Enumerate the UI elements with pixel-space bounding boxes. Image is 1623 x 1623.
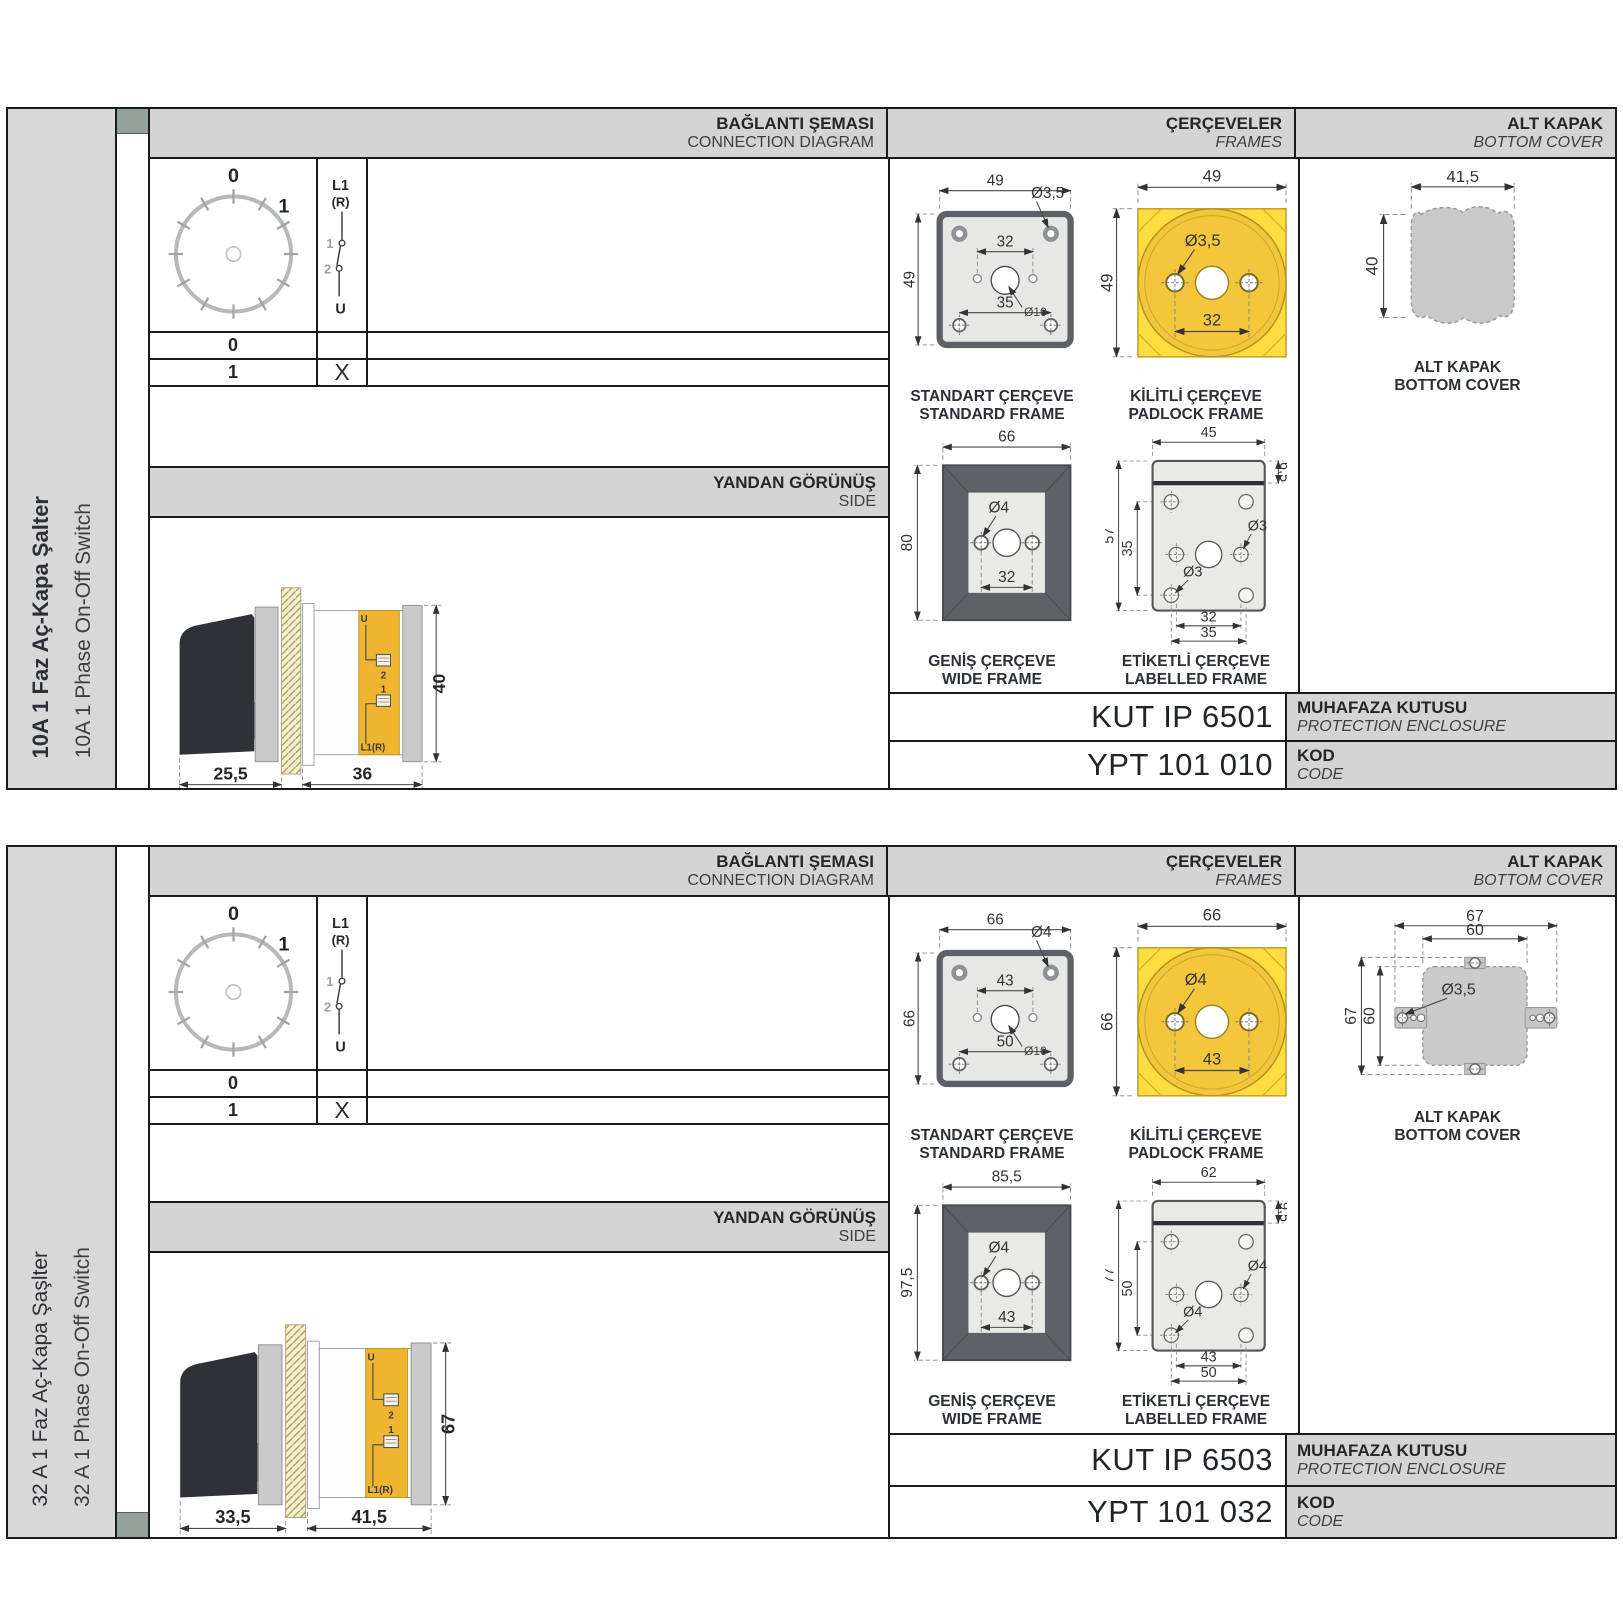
- panel-body: 0 1 L1 (R) 1 2 U: [150, 159, 1615, 788]
- enclosure-code-label: MUHAFAZA KUTUSU PROTECTION ENCLOSURE: [1285, 1435, 1615, 1485]
- contact-1-label: 1: [326, 974, 333, 989]
- dim-hole-left: Ø4: [1183, 1304, 1202, 1320]
- standard-frame-drawing: 66 Ø4 66 43 Ø10 50: [902, 901, 1081, 1127]
- header-bottom-cover: ALT KAPAK BOTTOM COVER: [1296, 847, 1615, 895]
- dim-height: 80: [901, 534, 916, 551]
- panel-content: BAĞLANTI ŞEMASI CONNECTION DIAGRAM ÇERÇE…: [150, 847, 1615, 1537]
- dim-hole: Ø3,5: [1184, 230, 1220, 249]
- contact-diagram-cell: L1 (R) 1 2 U: [318, 159, 368, 331]
- dim-height: 66: [902, 1010, 919, 1027]
- header-bottom-cover-en: BOTTOM COVER: [1474, 872, 1604, 890]
- enclosure-label-tr: MUHAFAZA KUTUSU: [1297, 1441, 1615, 1461]
- header-bottom-cover: ALT KAPAK BOTTOM COVER: [1296, 109, 1615, 157]
- labelled-frame-caption: ETİKETLİ ÇERÇEVE LABELLED FRAME: [1122, 1393, 1270, 1430]
- bottom-cover-column: 41,5 40 ALT KAPAK BOTTOM COVER: [1300, 159, 1615, 692]
- frames-column: 66 Ø4 66 43 Ø10 50 STANDART ÇERÇEVE STAN…: [890, 897, 1300, 1433]
- table-row: 1 X: [150, 360, 888, 387]
- side-view-en: SIDE: [839, 493, 876, 511]
- mark-cell: X: [318, 1098, 368, 1123]
- wide-frame-caption: GENİŞ ÇERÇEVE WIDE FRAME: [928, 653, 1055, 690]
- dim-width: 45: [1201, 427, 1217, 441]
- section-headers: BAĞLANTI ŞEMASI CONNECTION DIAGRAM ÇERÇE…: [150, 109, 1615, 159]
- product-title-en: 32 A 1 Phase On-Off Switch: [71, 1247, 95, 1507]
- product-code-row: YPT 101 010 KOD CODE: [890, 740, 1615, 788]
- dim-hole-right: Ø3: [1248, 518, 1267, 534]
- enclosure-label-tr: MUHAFAZA KUTUSU: [1297, 698, 1615, 718]
- caption-en: BOTTOM COVER: [1394, 1127, 1520, 1145]
- code-label-tr: KOD: [1297, 746, 1615, 766]
- header-frames-en: FRAMES: [1215, 134, 1282, 152]
- header-connection-tr: BAĞLANTI ŞEMASI: [716, 114, 874, 134]
- caption-en: BOTTOM COVER: [1394, 377, 1520, 395]
- dial-position-0: 0: [227, 165, 238, 187]
- header-bottom-cover-tr: ALT KAPAK: [1507, 114, 1603, 134]
- table-row: 1 X: [150, 1098, 888, 1125]
- dim-height: 57: [1105, 528, 1117, 544]
- dim-band: 9,5: [1276, 1202, 1287, 1222]
- contact-2-label: 2: [324, 261, 331, 276]
- padlock-frame-drawing: 49 49 Ø3,5 32: [1099, 162, 1294, 388]
- dim-bottom-span: 35: [997, 294, 1014, 311]
- dim-body-height: 67: [439, 1414, 459, 1434]
- side-view-area: U 2 1 L1(R) 25,5 36 40: [150, 518, 888, 788]
- bottom-cover-caption: ALT KAPAK BOTTOM COVER: [1394, 1109, 1520, 1146]
- contact-diagram-drawing: L1 (R) 1 2 U: [319, 899, 365, 1069]
- switching-table: 0 1 X: [150, 331, 888, 387]
- dim-height: 40: [1362, 257, 1381, 276]
- dim-top-span: 43: [997, 972, 1014, 989]
- enclosure-code-label: MUHAFAZA KUTUSU PROTECTION ENCLOSURE: [1285, 694, 1615, 740]
- header-frames-en: FRAMES: [1215, 872, 1282, 890]
- standard-frame-figure: 66 Ø4 66 43 Ø10 50 STANDART ÇERÇEVE STAN…: [902, 901, 1081, 1164]
- caption-en: LABELLED FRAME: [1122, 1411, 1270, 1429]
- dim-inner-height: 35: [1120, 540, 1136, 556]
- side-view-header: YANDAN GÖRÜNÜŞ SIDE: [150, 466, 888, 518]
- code-label-tr: KOD: [1297, 1493, 1615, 1513]
- enclosure-code-row: KUT IP 6503 MUHAFAZA KUTUSU PROTECTION E…: [890, 1433, 1615, 1485]
- dim-corner-hole: Ø4: [1031, 924, 1052, 941]
- switch-dial-drawing: 0 1: [157, 164, 310, 326]
- feed-phase-label: (R): [332, 194, 350, 209]
- header-connection-diagram: BAĞLANTI ŞEMASI CONNECTION DIAGRAM: [150, 847, 888, 895]
- terminal-u: U: [367, 1352, 374, 1363]
- position-cell: 1: [150, 360, 318, 385]
- frames-column: 49 Ø3,5 49 32 Ø10 35 STANDART ÇERÇEVE ST…: [890, 159, 1300, 692]
- labelled-frame-caption: ETİKETLİ ÇERÇEVE LABELLED FRAME: [1122, 653, 1270, 690]
- connection-diagram: 0 1 L1 (R) 1 2 U: [150, 159, 888, 331]
- standard-frame-figure: 49 Ø3,5 49 32 Ø10 35 STANDART ÇERÇEVE ST…: [902, 162, 1081, 425]
- product-code-label: KOD CODE: [1285, 742, 1615, 788]
- frames-region: 66 Ø4 66 43 Ø10 50 STANDART ÇERÇEVE STAN…: [890, 897, 1615, 1537]
- enclosure-code-row: KUT IP 6501 MUHAFAZA KUTUSU PROTECTION E…: [890, 692, 1615, 740]
- dim-width: 66: [987, 911, 1004, 928]
- caption-tr: GENİŞ ÇERÇEVE: [928, 1393, 1055, 1411]
- caption-tr: STANDART ÇERÇEVE: [910, 388, 1073, 406]
- enclosure-code-value: KUT IP 6503: [890, 1435, 1285, 1485]
- code-label-en: CODE: [1297, 766, 1615, 784]
- dim-width: 49: [987, 172, 1004, 189]
- dim-hole-left: Ø3: [1183, 564, 1202, 580]
- frames-and-cover: 49 Ø3,5 49 32 Ø10 35 STANDART ÇERÇEVE ST…: [890, 159, 1615, 692]
- switch-dial-drawing: 0 1: [157, 902, 310, 1064]
- table-row: 0: [150, 1071, 888, 1098]
- dim-span: 32: [1202, 310, 1220, 329]
- wide-frame-figure: 66 80 Ø4 32 GENİŞ ÇERÇEVE WIDE FRAME: [901, 427, 1083, 690]
- section-headers: BAĞLANTI ŞEMASI CONNECTION DIAGRAM ÇERÇE…: [150, 847, 1615, 897]
- panel-body: 0 1 L1 (R) 1 2 U: [150, 897, 1615, 1537]
- header-bottom-cover-tr: ALT KAPAK: [1507, 852, 1603, 872]
- dim-height: 49: [902, 271, 919, 288]
- product-title-tr: 32 A 1 Faz Aç-Kapa Şaşlter: [29, 1251, 53, 1507]
- standard-frame-drawing: 49 Ø3,5 49 32 Ø10 35: [902, 162, 1081, 388]
- side-view-drawing: U 2 1 L1(R) 33,5 41,5 67: [162, 1263, 462, 1537]
- caption-tr: ETİKETLİ ÇERÇEVE: [1122, 653, 1270, 671]
- dim-width: 66: [998, 428, 1015, 445]
- labelled-frame-figure: 62 9,5 77 50 Ø4 Ø4 43 50 ETİKETLİ ÇERÇEV…: [1105, 1167, 1287, 1430]
- wide-frame-drawing: 66 80 Ø4 32: [901, 427, 1083, 653]
- terminal-2: 2: [381, 670, 386, 681]
- padlock-frame-drawing: 66 66 Ø4 43: [1099, 901, 1294, 1127]
- switch-dial-cell: 0 1: [150, 159, 318, 331]
- connection-diagram: 0 1 L1 (R) 1 2 U: [150, 897, 888, 1069]
- caption-en: LABELLED FRAME: [1122, 671, 1270, 689]
- side-view-area: U 2 1 L1(R) 33,5 41,5 67: [150, 1253, 888, 1537]
- dim-corner-hole: Ø3,5: [1031, 185, 1064, 202]
- bottom-cover-figure: 41,5 40 ALT KAPAK BOTTOM COVER: [1344, 171, 1572, 396]
- product-code-label: KOD CODE: [1285, 1487, 1615, 1537]
- product-panel-10a: 10A 1 Faz Aç-Kapa Şalter 10A 1 Phase On-…: [6, 107, 1617, 790]
- product-panel-32a: 32 A 1 Faz Aç-Kapa Şaşlter 32 A 1 Phase …: [6, 845, 1617, 1539]
- dim-inner-height: 50: [1120, 1280, 1136, 1296]
- dim-span: 43: [1202, 1049, 1220, 1068]
- empty-cell: [368, 333, 888, 358]
- caption-tr: ALT KAPAK: [1394, 1109, 1520, 1127]
- connection-column: 0 1 L1 (R) 1 2 U: [150, 159, 890, 788]
- padlock-frame-figure: 66 66 Ø4 43 KİLİTLİ ÇERÇEVE PADLOCK FRAM…: [1099, 901, 1294, 1164]
- mark-cell: X: [318, 360, 368, 385]
- position-cell: 1: [150, 1098, 318, 1123]
- bottom-cover-figure: 67 60 67 60 Ø3,5 ALT KAPAK BOTTOM COVER: [1341, 909, 1574, 1146]
- dim-span: 32: [998, 569, 1015, 586]
- terminal-l1r: L1(R): [361, 742, 386, 753]
- caption-en: WIDE FRAME: [928, 671, 1055, 689]
- dim-inner-height: 60: [1362, 1007, 1379, 1025]
- enclosure-code-value: KUT IP 6501: [890, 694, 1285, 740]
- dim-hole: Ø4: [1184, 969, 1206, 988]
- dim-outer-height: 67: [1343, 1007, 1360, 1025]
- table-row: 0: [150, 333, 888, 360]
- mark-cell: [318, 333, 368, 358]
- header-frames: ÇERÇEVELER FRAMES: [888, 109, 1296, 157]
- header-frames-tr: ÇERÇEVELER: [1166, 852, 1282, 872]
- product-sidebar: 10A 1 Faz Aç-Kapa Şalter 10A 1 Phase On-…: [8, 109, 117, 788]
- header-frames-tr: ÇERÇEVELER: [1166, 114, 1282, 134]
- terminal-1: 1: [388, 1425, 394, 1436]
- padlock-frame-caption: KİLİTLİ ÇERÇEVE PADLOCK FRAME: [1129, 388, 1264, 425]
- labelled-frame-drawing: 62 9,5 77 50 Ø4 Ø4 43 50: [1105, 1167, 1287, 1393]
- side-view-drawing: U 2 1 L1(R) 25,5 36 40: [162, 528, 452, 788]
- position-cell: 0: [150, 333, 318, 358]
- caption-tr: KİLİTLİ ÇERÇEVE: [1129, 388, 1264, 406]
- feed-phase-label: (R): [332, 932, 350, 947]
- side-view-tr: YANDAN GÖRÜNÜŞ: [713, 473, 876, 493]
- dim-center-hole: Ø10: [1024, 1044, 1047, 1058]
- product-code-row: YPT 101 032 KOD CODE: [890, 1485, 1615, 1537]
- product-title-en: 10A 1 Phase On-Off Switch: [72, 503, 96, 758]
- dim-front-depth: 25,5: [213, 763, 247, 783]
- load-label: U: [335, 1040, 345, 1056]
- dim-width: 66: [1202, 905, 1220, 924]
- edge-strip: [117, 847, 150, 1537]
- dim-top-span: 32: [997, 233, 1014, 250]
- enclosure-label-en: PROTECTION ENCLOSURE: [1297, 1461, 1615, 1479]
- switching-table: 0 1 X: [150, 1069, 888, 1125]
- contact-diagram-cell: L1 (R) 1 2 U: [318, 897, 368, 1069]
- position-cell: 0: [150, 1071, 318, 1096]
- padlock-frame-caption: KİLİTLİ ÇERÇEVE PADLOCK FRAME: [1129, 1127, 1264, 1164]
- frames-region: 49 Ø3,5 49 32 Ø10 35 STANDART ÇERÇEVE ST…: [890, 159, 1615, 788]
- dim-front-depth: 33,5: [215, 1507, 250, 1527]
- header-connection-en: CONNECTION DIAGRAM: [687, 872, 874, 890]
- mark-cell: [318, 1071, 368, 1096]
- feed-line-label: L1: [332, 178, 349, 194]
- caption-en: PADLOCK FRAME: [1129, 1145, 1264, 1163]
- dim-span-outer: 50: [1201, 1365, 1217, 1381]
- caption-en: WIDE FRAME: [928, 1411, 1055, 1429]
- connection-column: 0 1 L1 (R) 1 2 U: [150, 897, 890, 1537]
- dim-body-depth: 41,5: [352, 1507, 387, 1527]
- dim-hole: Ø3,5: [1442, 982, 1476, 999]
- empty-cell: [368, 360, 888, 385]
- dim-hole-right: Ø4: [1248, 1258, 1267, 1274]
- header-frames: ÇERÇEVELER FRAMES: [888, 847, 1296, 895]
- bottom-cover-column: 67 60 67 60 Ø3,5 ALT KAPAK BOTTOM COVER: [1300, 897, 1615, 1433]
- dim-inner-width: 60: [1466, 922, 1484, 939]
- side-view-header: YANDAN GÖRÜNÜŞ SIDE: [150, 1201, 888, 1253]
- caption-en: PADLOCK FRAME: [1129, 406, 1264, 424]
- dim-hole: Ø4: [988, 1239, 1009, 1256]
- product-sidebar: 32 A 1 Faz Aç-Kapa Şaşlter 32 A 1 Phase …: [8, 847, 117, 1537]
- terminal-l1r: L1(R): [367, 1485, 393, 1496]
- wide-frame-drawing: 85,5 97,5 Ø4 43: [901, 1167, 1083, 1393]
- header-connection-en: CONNECTION DIAGRAM: [687, 134, 874, 152]
- padlock-frame-figure: 49 49 Ø3,5 32 KİLİTLİ ÇERÇEVE PADLOCK FR…: [1099, 162, 1294, 425]
- edge-mark: [117, 1512, 148, 1537]
- dim-center-hole: Ø10: [1024, 305, 1047, 319]
- caption-tr: ALT KAPAK: [1394, 359, 1520, 377]
- dial-position-1: 1: [278, 196, 289, 218]
- terminal-2: 2: [388, 1410, 394, 1421]
- frames-and-cover: 66 Ø4 66 43 Ø10 50 STANDART ÇERÇEVE STAN…: [890, 897, 1615, 1433]
- labelled-frame-figure: 45 6,5 57 35 Ø3 Ø3 32 35 ETİKETLİ ÇERÇEV…: [1105, 427, 1287, 690]
- load-label: U: [335, 302, 345, 318]
- empty-cell: [368, 1071, 888, 1096]
- terminal-1: 1: [381, 684, 387, 695]
- header-bottom-cover-en: BOTTOM COVER: [1474, 134, 1604, 152]
- dim-width: 49: [1202, 166, 1220, 185]
- edge-mark: [117, 109, 148, 134]
- dim-height: 66: [1099, 1012, 1117, 1030]
- enclosure-label-en: PROTECTION ENCLOSURE: [1297, 718, 1615, 736]
- dim-width: 62: [1201, 1167, 1217, 1181]
- dim-span-inner: 32: [1201, 609, 1217, 625]
- wide-frame-figure: 85,5 97,5 Ø4 43 GENİŞ ÇERÇEVE WIDE FRAME: [901, 1167, 1083, 1430]
- side-view-en: SIDE: [839, 1228, 876, 1246]
- dim-body-depth: 36: [353, 763, 373, 783]
- dial-position-1: 1: [278, 934, 289, 956]
- product-title-tr: 10A 1 Faz Aç-Kapa Şalter: [28, 496, 54, 758]
- dim-hole: Ø4: [988, 499, 1009, 516]
- spacer: [150, 387, 888, 466]
- terminal-u: U: [361, 614, 368, 625]
- dim-height: 77: [1105, 1268, 1117, 1284]
- caption-tr: STANDART ÇERÇEVE: [910, 1127, 1073, 1145]
- bottom-cover-drawing: 41,5 40: [1344, 171, 1572, 359]
- dim-height: 97,5: [901, 1267, 916, 1297]
- header-connection-diagram: BAĞLANTI ŞEMASI CONNECTION DIAGRAM: [150, 109, 888, 157]
- dim-width: 41,5: [1446, 171, 1479, 186]
- bottom-cover-caption: ALT KAPAK BOTTOM COVER: [1394, 359, 1520, 396]
- dim-height: 49: [1099, 273, 1117, 291]
- empty-cell: [368, 1098, 888, 1123]
- contact-diagram-drawing: L1 (R) 1 2 U: [319, 161, 365, 331]
- dim-band: 6,5: [1276, 462, 1287, 482]
- panel-content: BAĞLANTI ŞEMASI CONNECTION DIAGRAM ÇERÇE…: [150, 109, 1615, 788]
- code-label-en: CODE: [1297, 1513, 1615, 1531]
- standard-frame-caption: STANDART ÇERÇEVE STANDARD FRAME: [910, 1127, 1073, 1164]
- caption-tr: KİLİTLİ ÇERÇEVE: [1129, 1127, 1264, 1145]
- caption-tr: GENİŞ ÇERÇEVE: [928, 653, 1055, 671]
- labelled-frame-drawing: 45 6,5 57 35 Ø3 Ø3 32 35: [1105, 427, 1287, 653]
- dim-span-inner: 43: [1201, 1349, 1217, 1365]
- feed-line-label: L1: [332, 916, 349, 932]
- side-view-tr: YANDAN GÖRÜNÜŞ: [713, 1208, 876, 1228]
- spacer: [150, 1125, 888, 1201]
- dim-span: 43: [998, 1309, 1015, 1326]
- dim-body-height: 40: [429, 674, 449, 694]
- standard-frame-caption: STANDART ÇERÇEVE STANDARD FRAME: [910, 388, 1073, 425]
- caption-tr: ETİKETLİ ÇERÇEVE: [1122, 1393, 1270, 1411]
- product-code-value: YPT 101 032: [890, 1487, 1285, 1537]
- wide-frame-caption: GENİŞ ÇERÇEVE WIDE FRAME: [928, 1393, 1055, 1430]
- header-connection-tr: BAĞLANTI ŞEMASI: [716, 852, 874, 872]
- edge-strip: [117, 109, 150, 788]
- caption-en: STANDARD FRAME: [910, 406, 1073, 424]
- product-code-value: YPT 101 010: [890, 742, 1285, 788]
- caption-en: STANDARD FRAME: [910, 1145, 1073, 1163]
- dim-span-outer: 35: [1201, 625, 1217, 641]
- dim-width: 85,5: [992, 1168, 1022, 1185]
- dial-position-0: 0: [227, 903, 238, 925]
- contact-2-label: 2: [324, 999, 331, 1014]
- bottom-cover-drawing: 67 60 67 60 Ø3,5: [1341, 909, 1574, 1109]
- contact-1-label: 1: [326, 236, 333, 251]
- switch-dial-cell: 0 1: [150, 897, 318, 1069]
- dim-bottom-span: 50: [997, 1033, 1014, 1050]
